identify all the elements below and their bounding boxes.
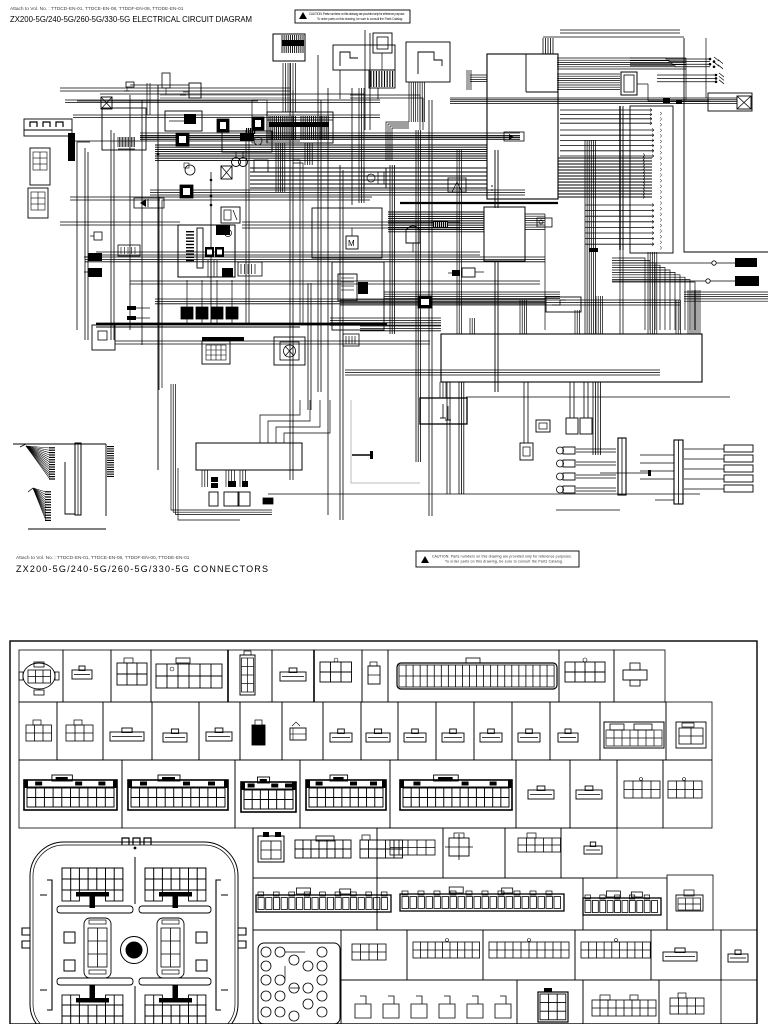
svg-text:Attach to Vol. No. : TTDCD-EN-: Attach to Vol. No. : TTDCD-EN-01, TTDCE-… bbox=[16, 555, 190, 561]
svg-text:To order parts on this drawing: To order parts on this drawing, be sure … bbox=[445, 560, 563, 564]
svg-text:CAUTION: Parts numbers on this: CAUTION: Parts numbers on this drawing a… bbox=[432, 555, 572, 559]
svg-text:CAUTION: Parts numbers on this: CAUTION: Parts numbers on this drawing a… bbox=[309, 12, 405, 16]
svg-text:ZX200-5G/240-5G/260-5G/330-5G: ZX200-5G/240-5G/260-5G/330-5G ELECTRICAL… bbox=[10, 15, 252, 24]
svg-text:M: M bbox=[348, 239, 355, 248]
svg-text:ZX200-5G/240-5G/260-5G/330-5G: ZX200-5G/240-5G/260-5G/330-5G CONNECTORS bbox=[16, 564, 268, 574]
svg-text:Attach to Vol. No. : TTDCD-EN-: Attach to Vol. No. : TTDCD-EN-01, TTDCE-… bbox=[10, 6, 184, 12]
svg-text:To order parts on this drawing: To order parts on this drawing, be sure … bbox=[317, 17, 403, 21]
